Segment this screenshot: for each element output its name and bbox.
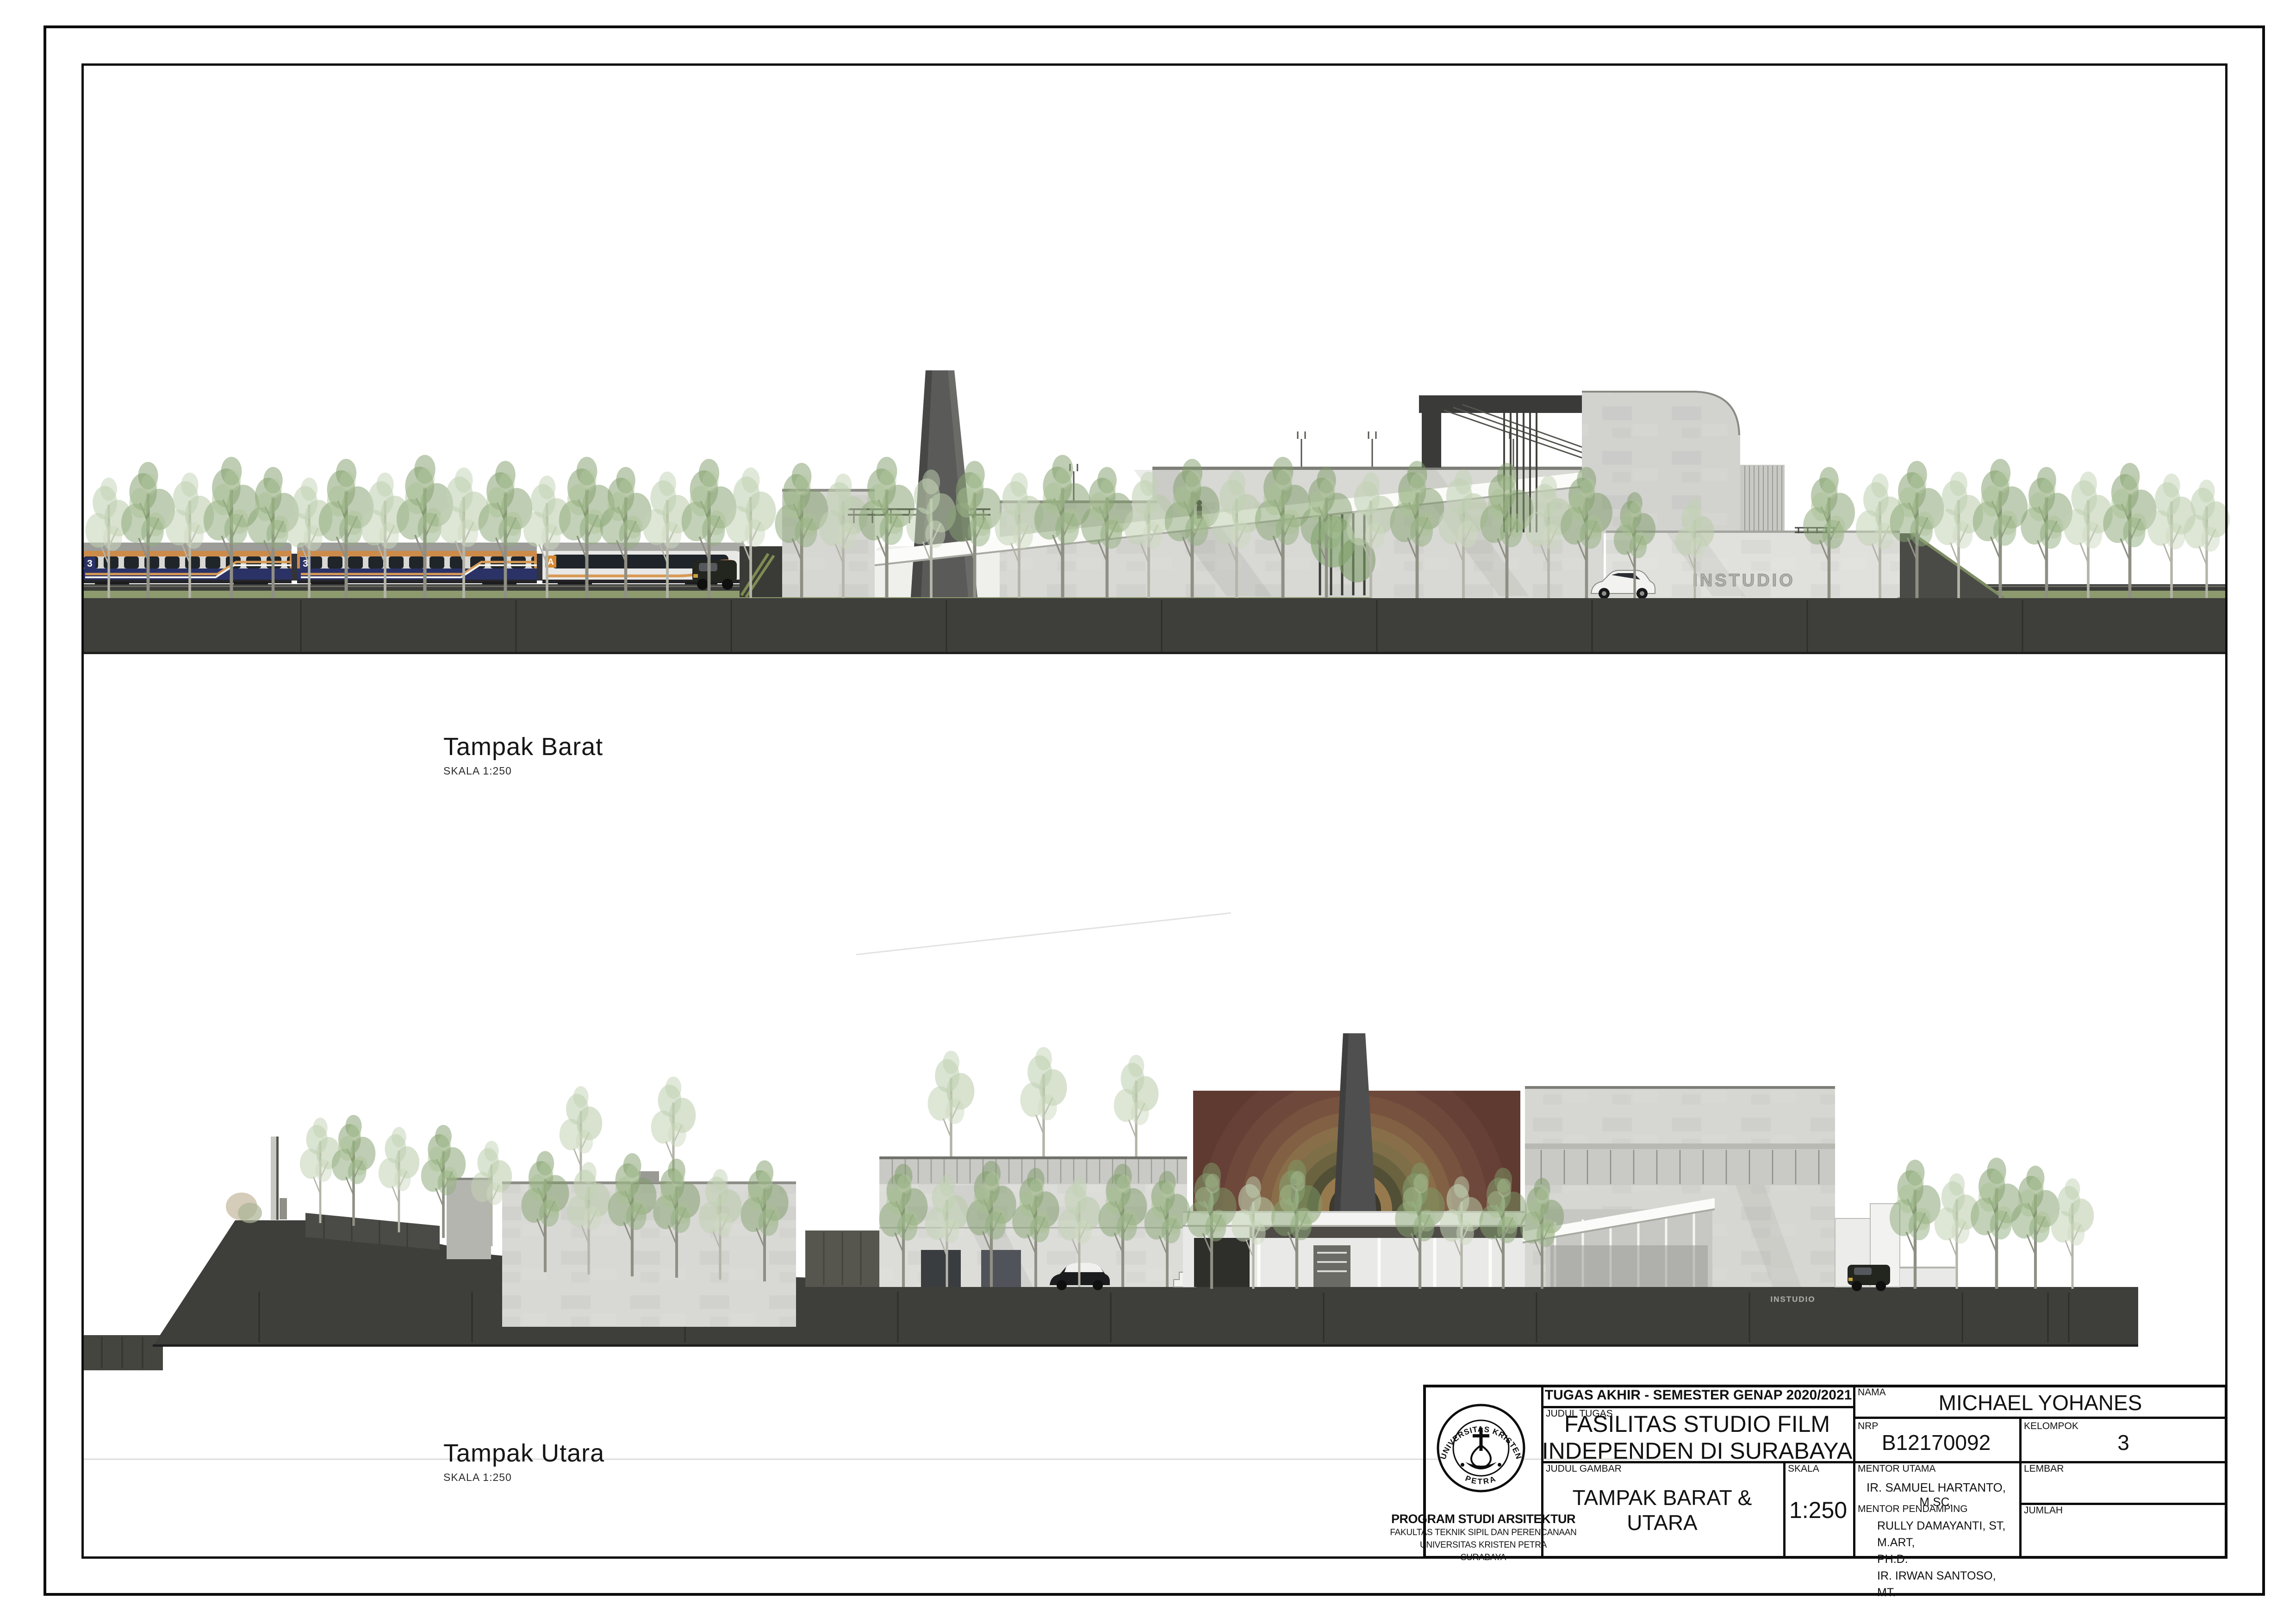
caption-north: Tampak Utara SKALA 1:250 [443,1439,604,1484]
tb-skala-label: SKALA [1788,1463,1819,1474]
tb-nama-label: NAMA [1858,1387,1886,1398]
tb-nrp-label: NRP [1858,1421,1878,1432]
tb-header: TUGAS AKHIR - SEMESTER GENAP 2020/2021 [1543,1385,1853,1406]
tb-judul-tugas-2: INDEPENDEN DI SURABAYA [1542,1437,1853,1464]
tb-mentor-utama-label: MENTOR UTAMA [1858,1463,1935,1474]
tb-judul-gambar: TAMPAK BARAT & UTARA [1541,1461,1783,1559]
inner-border [81,63,2228,1559]
tb-judul-gambar-label: JUDUL GAMBAR [1546,1463,1622,1474]
tb-jumlah-label: JUMLAH [2024,1505,2063,1516]
tb-judul-tugas-label: JUDUL TUGAS [1546,1408,1613,1419]
tb-mentor-pendamping-3: IR. IRWAN SANTOSO, MT. [1877,1568,2016,1601]
caption-west-scale: SKALA 1:250 [443,765,603,777]
drawing-sheet: 3 3 [0,0,2296,1624]
tb-mentor-pendamping-1: RULLY DAMAYANTI, ST, M.ART, [1877,1518,2016,1551]
caption-west: Tampak Barat SKALA 1:250 [443,732,603,777]
petra-logo: UNIVERSITAS KRISTEN PETRA [1435,1402,1527,1494]
caption-north-title: Tampak Utara [443,1439,604,1468]
tb-mentor-pendamping-2: PH.D. [1877,1551,2016,1568]
caption-north-scale: SKALA 1:250 [443,1471,604,1484]
tb-mentor-pendamping-label: MENTOR PENDAMPING [1858,1504,1968,1515]
caption-west-title: Tampak Barat [443,732,603,761]
tb-lembar-label: LEMBAR [2024,1463,2064,1474]
tb-skala: 1:250 [1783,1461,1853,1559]
tb-kelompok-label: KELOMPOK [2024,1421,2078,1432]
tb-nama: MICHAEL YOHANES [1853,1389,2228,1417]
